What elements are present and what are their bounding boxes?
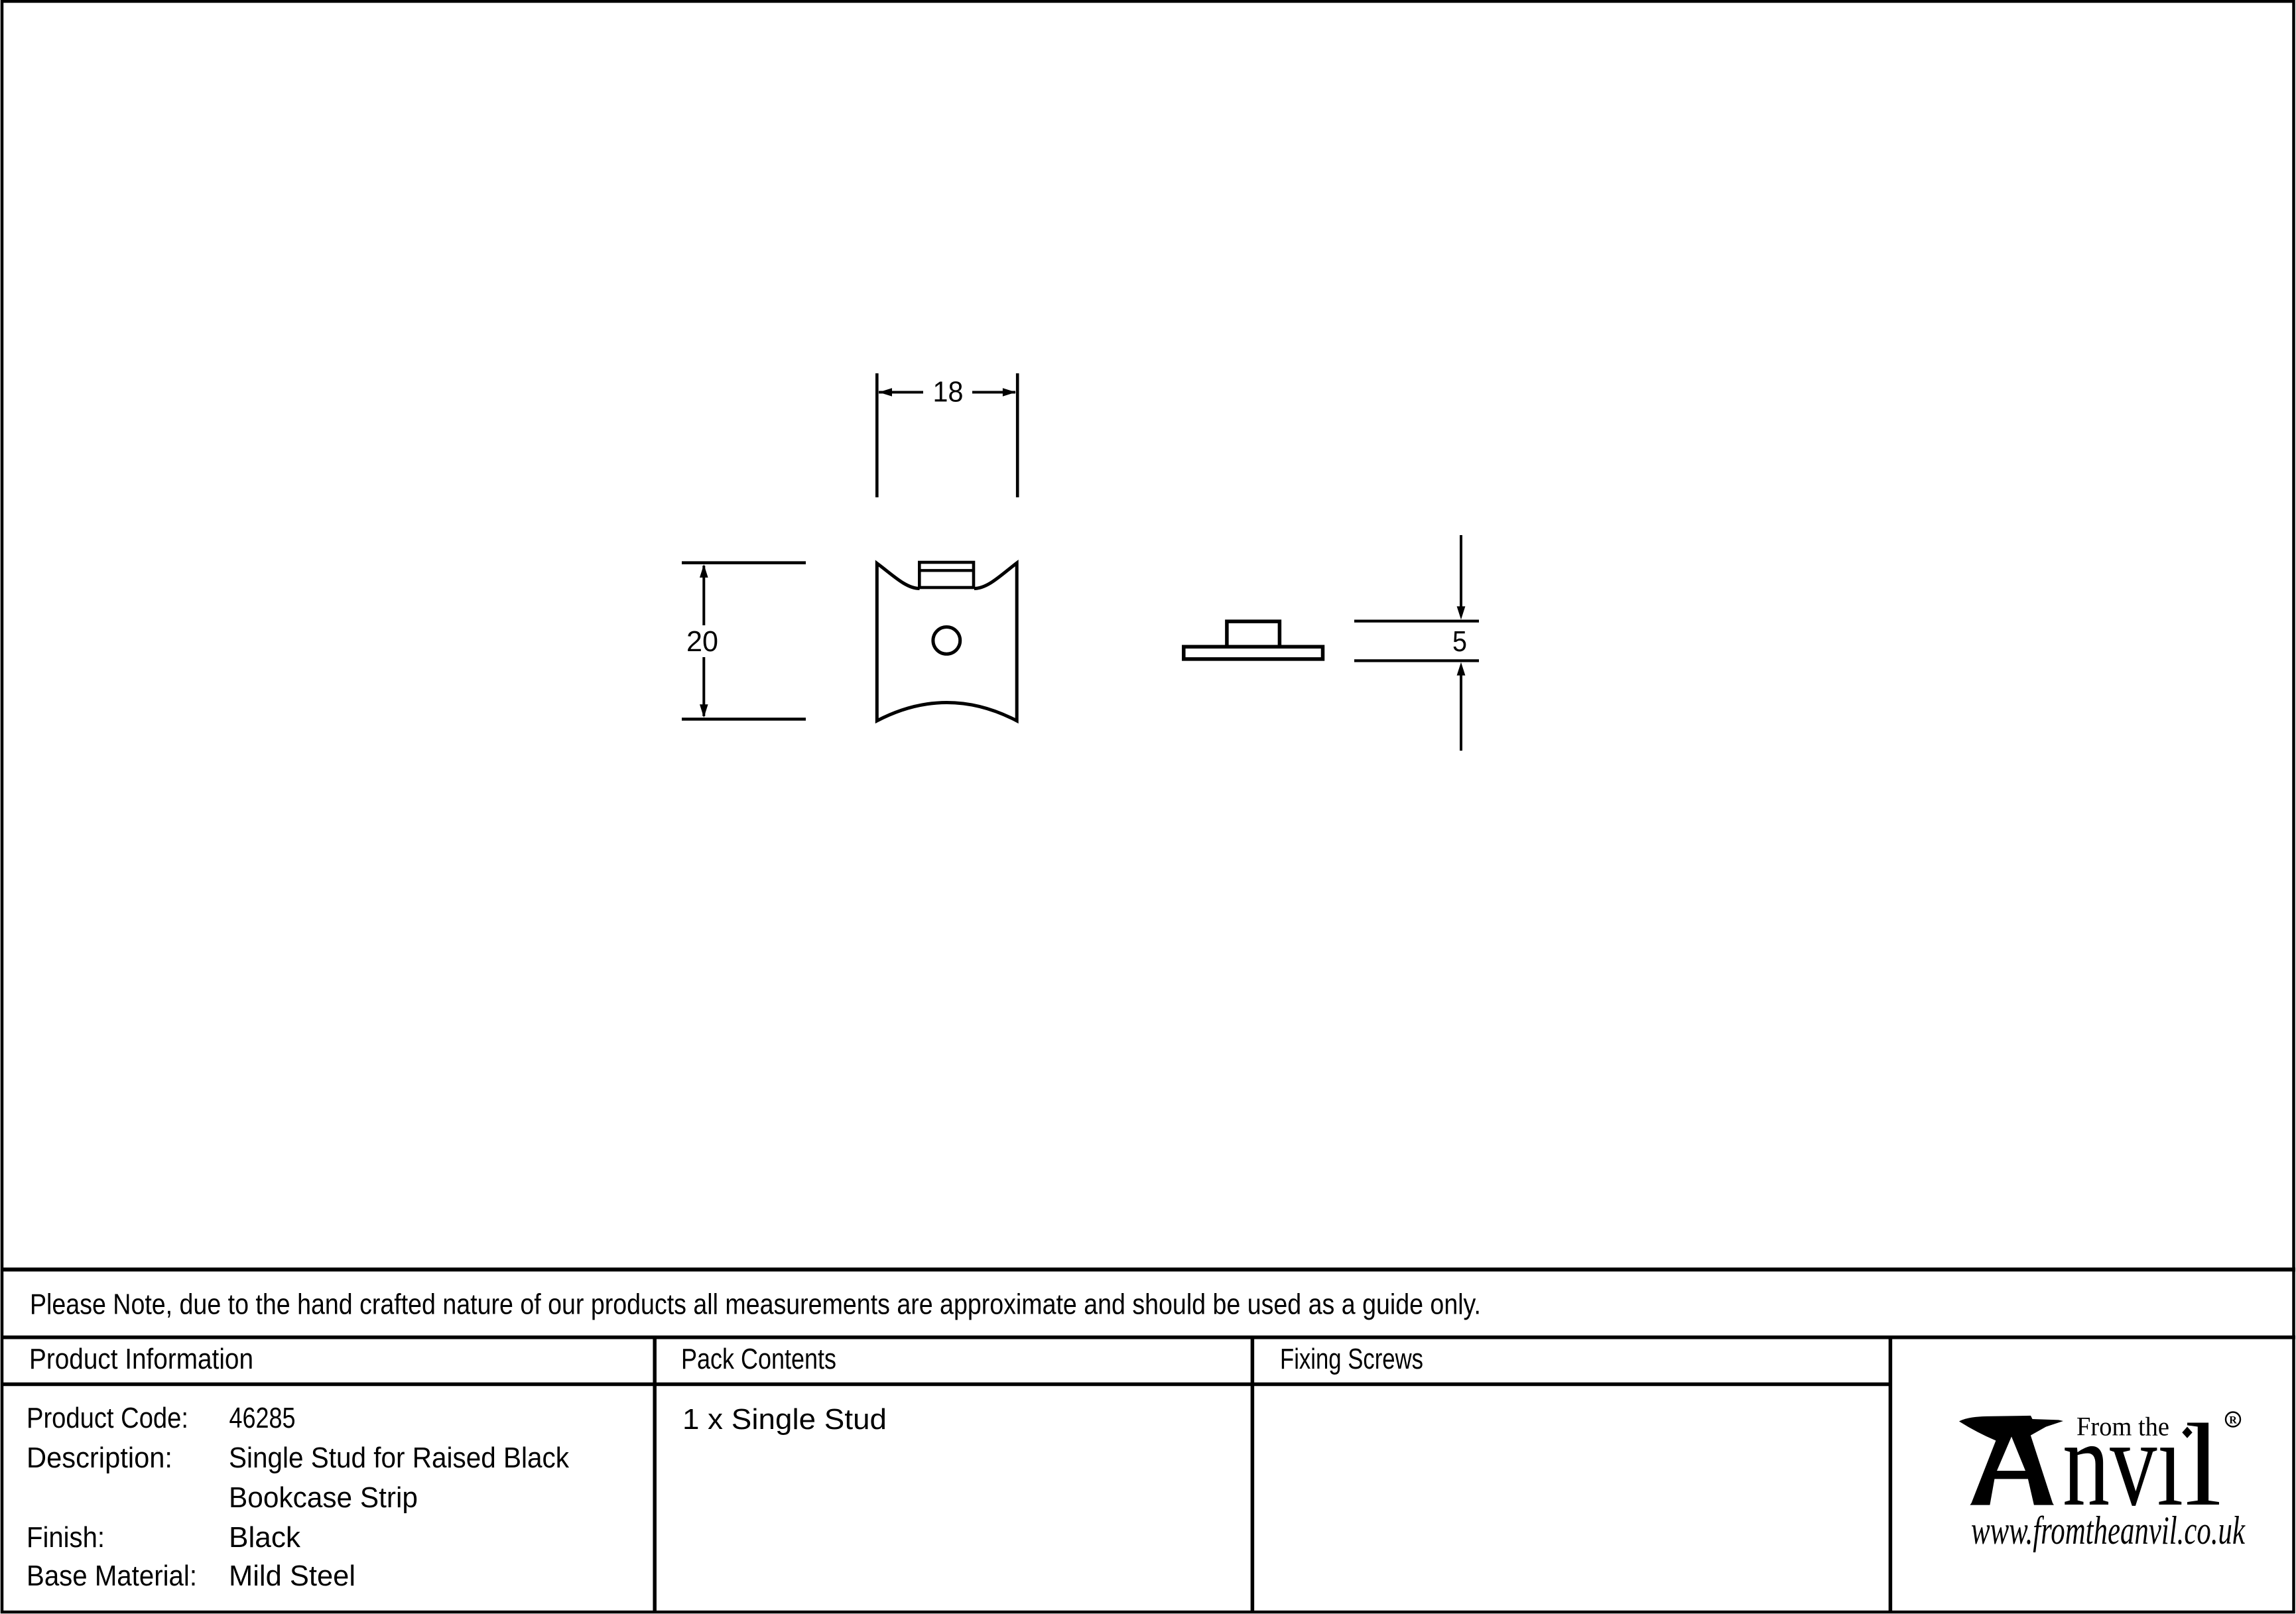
svg-text:Description:: Description: — [27, 1442, 172, 1474]
svg-text:Please Note, due to the hand c: Please Note, due to the hand crafted nat… — [30, 1288, 1481, 1321]
svg-text:20: 20 — [686, 625, 718, 658]
svg-text:Product Code:: Product Code: — [27, 1402, 188, 1434]
svg-text:46285: 46285 — [229, 1402, 296, 1434]
svg-text:R: R — [2229, 1414, 2237, 1426]
svg-text:Mild Steel: Mild Steel — [229, 1560, 355, 1592]
svg-text:18: 18 — [933, 376, 964, 408]
svg-text:Base Material:: Base Material: — [27, 1560, 197, 1592]
svg-text:Finish:: Finish: — [27, 1521, 105, 1554]
svg-text:Fixing Screws: Fixing Screws — [1280, 1343, 1423, 1375]
svg-text:www.fromtheanvil.co.uk: www.fromtheanvil.co.uk — [1971, 1509, 2246, 1552]
svg-text:1 x Single Stud: 1 x Single Stud — [682, 1403, 887, 1436]
svg-text:5: 5 — [1452, 625, 1467, 658]
svg-text:Black: Black — [229, 1521, 301, 1554]
svg-text:Single Stud for Raised Black: Single Stud for Raised Black — [229, 1442, 570, 1474]
svg-text:Product Information: Product Information — [29, 1343, 253, 1375]
svg-text:Pack Contents: Pack Contents — [681, 1343, 836, 1375]
svg-text:Bookcase Strip: Bookcase Strip — [229, 1481, 418, 1514]
